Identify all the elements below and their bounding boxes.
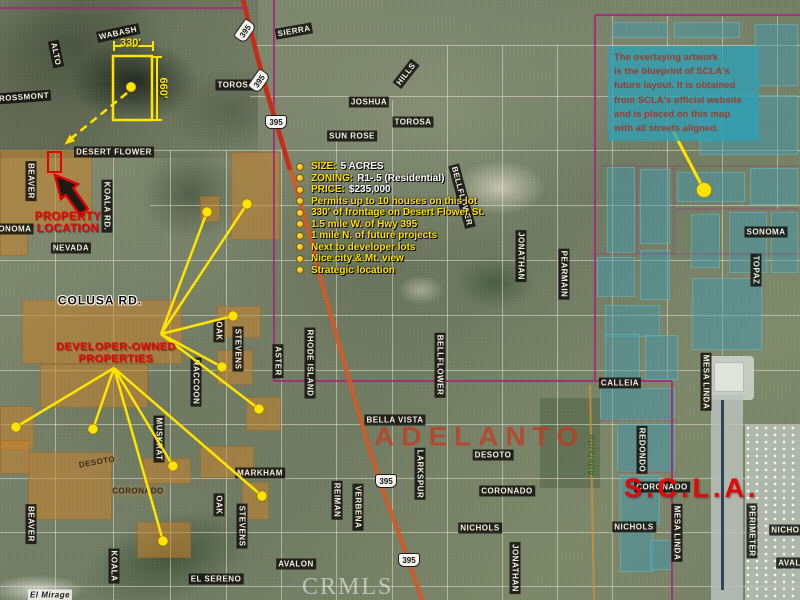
list-item: 330' of frontage on Desert Flower St. <box>296 207 485 219</box>
note-line: The overlaying artwork <box>614 51 753 65</box>
property-location-line1: PROPERTY <box>20 211 116 223</box>
developer-line2: PROPERTIES <box>40 353 192 365</box>
note-line: is the blueprint of SCLA's <box>614 65 753 79</box>
developer-line1: DEVELOPER-OWNED <box>40 341 192 353</box>
list-item-text: 330' of frontage on Desert Flower St. <box>311 207 485 218</box>
list-item: 1 mile N. of future projects <box>296 230 485 242</box>
width-dimension-label: 330' <box>120 37 141 49</box>
bullet-icon <box>296 243 304 251</box>
bullet-icon <box>296 209 304 217</box>
note-line: future layout. It is obtained <box>614 79 753 93</box>
list-item-text: PRICE:$235,000 <box>311 184 391 195</box>
list-item-text: SIZE:5 ACRES <box>311 161 384 172</box>
list-item: SIZE:5 ACRES <box>296 161 485 173</box>
list-item: PRICE:$235,000 <box>296 184 485 196</box>
list-item: Permits up to 10 houses on this lot <box>296 196 485 208</box>
route-395-shield: 395 <box>247 68 271 94</box>
note-line: with all streets aligned. <box>614 122 753 136</box>
list-item: Next to developer lots <box>296 242 485 254</box>
bullet-icon <box>296 163 304 171</box>
scla-title: S.C.L.A. <box>624 473 760 504</box>
route-395-shield: 395 <box>233 18 257 44</box>
listing-details-list: SIZE:5 ACRES ZONING:R1-.5 (Residential) … <box>296 161 485 276</box>
bullet-icon <box>296 266 304 274</box>
list-item-text: Permits up to 10 houses on this lot <box>311 196 477 207</box>
list-item-text: 1.5 mile W. of Hwy 395 <box>311 219 417 230</box>
item-label: ZONING: <box>311 173 353 184</box>
list-item-text: Strategic location <box>311 265 395 276</box>
scla-overlay-note: The overlaying artwork is the blueprint … <box>608 46 759 141</box>
list-item-text: Nice city & Mt. view <box>311 253 404 264</box>
aerial-map: WABASHALTOROSSMONTTOROSASIERRAHILLSJOSHU… <box>0 0 800 600</box>
developer-properties-callout: DEVELOPER-OWNED PROPERTIES <box>40 341 192 365</box>
list-item: Nice city & Mt. view <box>296 253 485 265</box>
list-item-text: ZONING:R1-.5 (Residential) <box>311 173 444 184</box>
item-label: PRICE: <box>311 184 345 195</box>
note-line: from SCLA's official website <box>614 94 753 108</box>
item-value: $235,000 <box>349 184 391 195</box>
list-item: 1.5 mile W. of Hwy 395 <box>296 219 485 231</box>
item-value: R1-.5 (Residential) <box>357 173 444 184</box>
adelanto-city-watermark: ADELANTO <box>374 422 585 452</box>
height-dimension-label: 660' <box>157 78 169 99</box>
property-location-line2: LOCATION <box>20 223 116 235</box>
route-395-shield: 395 <box>398 553 420 567</box>
bullet-icon <box>296 197 304 205</box>
route-395-shield: 395 <box>265 115 287 129</box>
list-item-text: 1 mile N. of future projects <box>311 230 437 241</box>
property-location-callout: PROPERTY LOCATION <box>20 211 116 235</box>
item-value: 5 ACRES <box>341 161 384 172</box>
bullet-icon <box>296 186 304 194</box>
crmls-watermark: CRMLS <box>302 574 393 600</box>
list-item: Strategic location <box>296 265 485 277</box>
item-label: SIZE: <box>311 161 337 172</box>
list-item-text: Next to developer lots <box>311 242 415 253</box>
bullet-icon <box>296 220 304 228</box>
route-395-shield: 395 <box>375 474 397 488</box>
list-item: ZONING:R1-.5 (Residential) <box>296 173 485 185</box>
note-line: and is placed on this map <box>614 108 753 122</box>
bullet-icon <box>296 232 304 240</box>
bullet-icon <box>296 174 304 182</box>
bullet-icon <box>296 255 304 263</box>
